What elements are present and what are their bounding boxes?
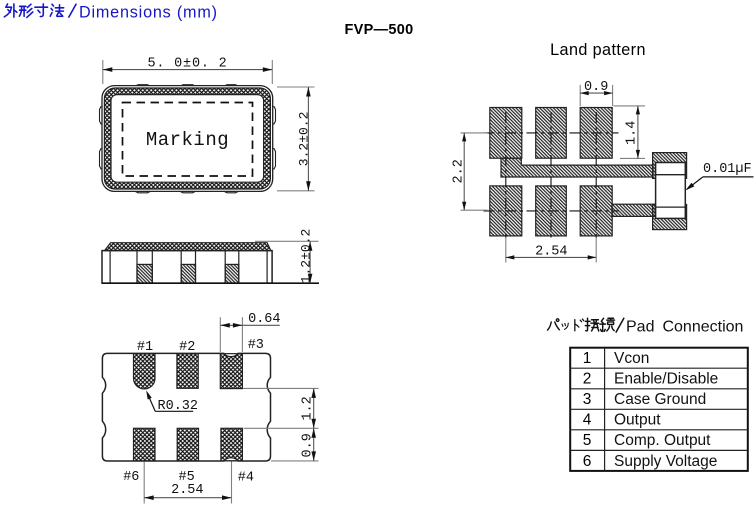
svg-text:#4: #4 — [238, 471, 254, 486]
svg-text:#1: #1 — [137, 340, 153, 355]
svg-text:6: 6 — [583, 453, 592, 470]
svg-text:Marking: Marking — [146, 129, 229, 151]
svg-text:3.2±0.2: 3.2±0.2 — [296, 112, 311, 167]
svg-text:Dimensions (mm): Dimensions (mm) — [79, 4, 218, 22]
svg-text:1.2±0.2: 1.2±0.2 — [298, 229, 313, 284]
svg-text:Enable/Disable: Enable/Disable — [614, 371, 718, 388]
svg-text:4: 4 — [583, 412, 592, 429]
svg-text:Case Ground: Case Ground — [614, 391, 706, 408]
svg-text:Comp. Output: Comp. Output — [614, 432, 711, 449]
svg-text:0.64: 0.64 — [248, 312, 280, 327]
svg-text:R0.32: R0.32 — [158, 399, 199, 414]
svg-text:Supply Voltage: Supply Voltage — [614, 453, 717, 470]
svg-text:#3: #3 — [248, 338, 264, 353]
svg-text:#2: #2 — [179, 340, 195, 355]
svg-text:Pad Connection: Pad Connection — [626, 319, 743, 336]
svg-text:0.9: 0.9 — [584, 80, 608, 95]
svg-text:#6: #6 — [123, 470, 139, 485]
svg-text:Output: Output — [614, 412, 661, 429]
svg-text:Vcon: Vcon — [614, 350, 649, 367]
svg-text:0.01µF: 0.01µF — [703, 162, 752, 177]
svg-text:2.54: 2.54 — [171, 483, 203, 498]
svg-text:Land pattern: Land pattern — [550, 41, 646, 59]
svg-text:2: 2 — [583, 371, 592, 388]
svg-text:3: 3 — [583, 391, 592, 408]
svg-text:1.4: 1.4 — [625, 121, 640, 145]
svg-text:FVP—500: FVP—500 — [345, 22, 414, 38]
svg-text:2.54: 2.54 — [535, 244, 567, 259]
svg-text:1.2: 1.2 — [301, 396, 316, 420]
svg-text:2.2: 2.2 — [452, 159, 467, 183]
svg-text:1: 1 — [583, 350, 592, 367]
svg-text:5. 0±0. 2: 5. 0±0. 2 — [147, 56, 227, 71]
svg-text:0.9: 0.9 — [301, 433, 316, 457]
svg-text:5: 5 — [583, 432, 592, 449]
